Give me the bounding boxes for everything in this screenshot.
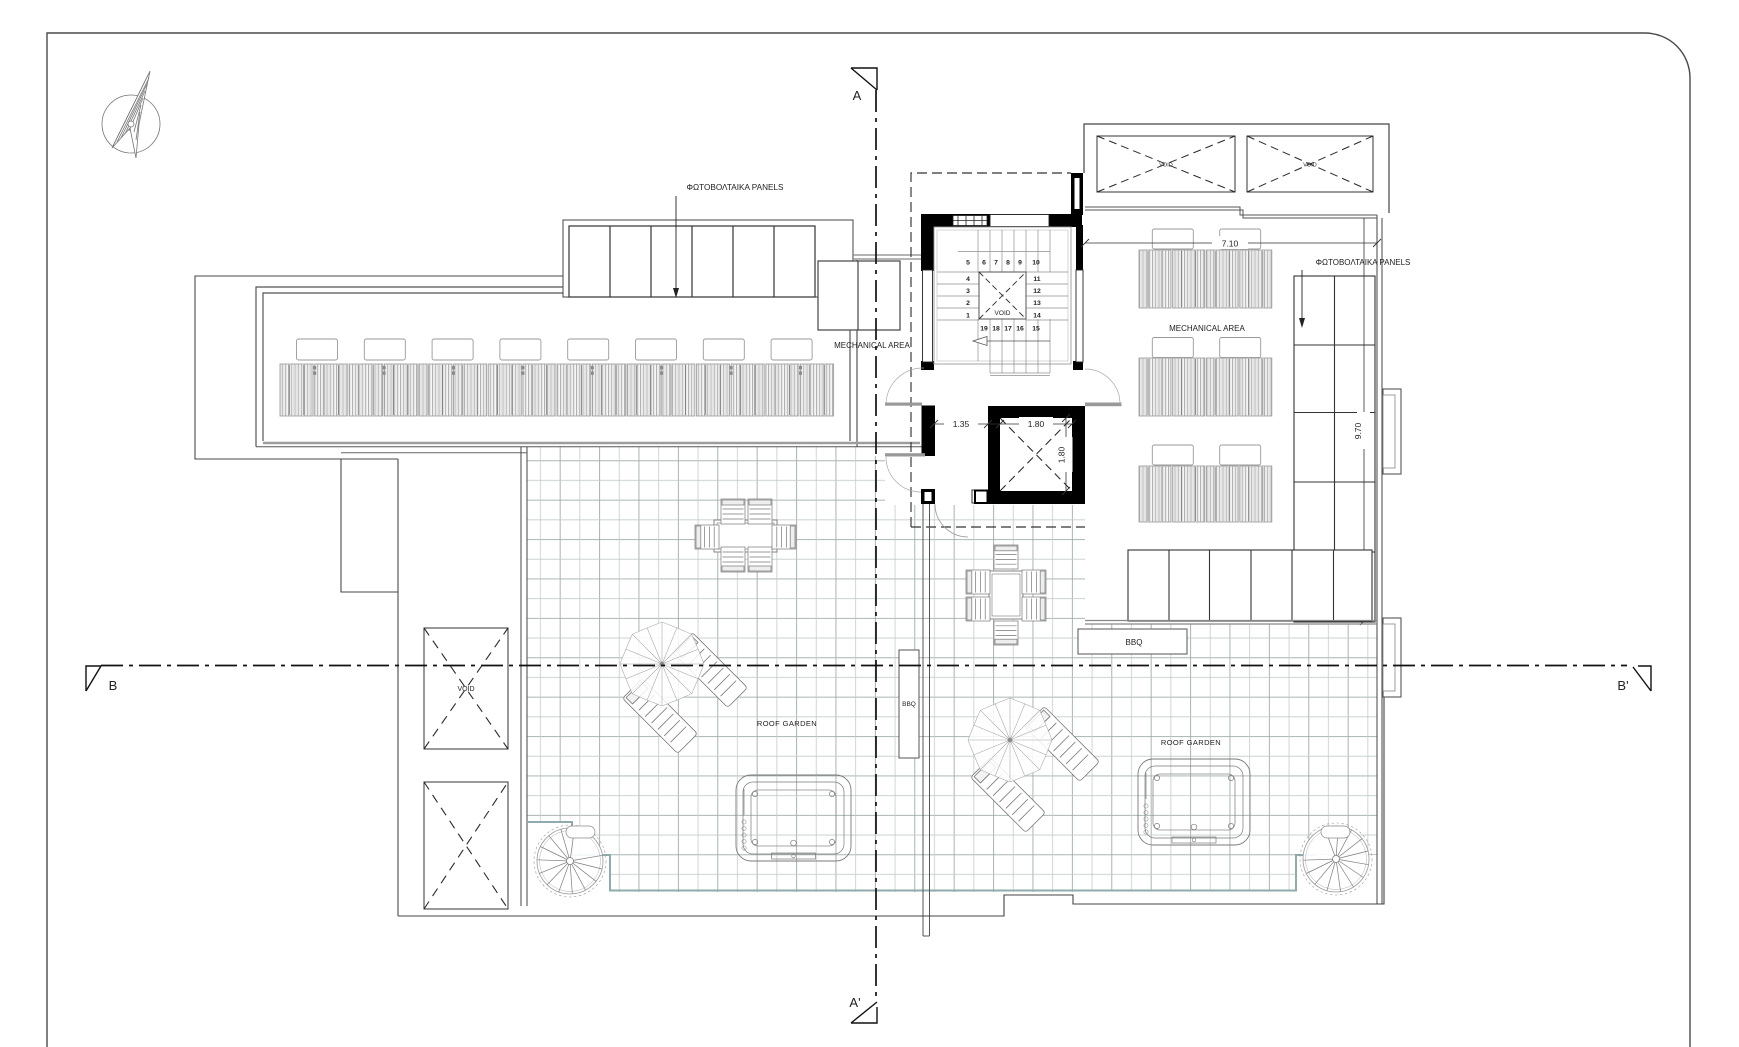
svg-text:ΦΩΤΟΒΟΛΤΑΙΚΑ PANELS: ΦΩΤΟΒΟΛΤΑΙΚΑ PANELS	[1316, 258, 1411, 267]
svg-text:7: 7	[994, 260, 998, 267]
svg-text:14: 14	[1033, 313, 1041, 320]
svg-text:10: 10	[1032, 260, 1040, 267]
svg-text:8: 8	[1006, 260, 1010, 267]
svg-text:ROOF GARDEN: ROOF GARDEN	[757, 719, 817, 728]
svg-text:1.80: 1.80	[1028, 419, 1045, 429]
svg-text:MECHANICAL AREA: MECHANICAL AREA	[1169, 324, 1245, 333]
svg-text:15: 15	[1032, 326, 1040, 333]
svg-text:16: 16	[1016, 326, 1024, 333]
svg-text:9.70: 9.70	[1353, 422, 1363, 439]
svg-text:1: 1	[966, 313, 970, 320]
svg-text:2: 2	[966, 300, 970, 307]
svg-text:9: 9	[1018, 260, 1022, 267]
svg-text:VOID: VOID	[995, 310, 1011, 317]
svg-text:6: 6	[982, 260, 986, 267]
svg-text:1.35: 1.35	[953, 419, 970, 429]
svg-text:5: 5	[966, 260, 970, 267]
svg-text:B: B	[109, 678, 118, 693]
svg-text:BBQ: BBQ	[1126, 638, 1143, 647]
svg-text:7.10: 7.10	[1222, 239, 1239, 249]
svg-text:18: 18	[992, 326, 1000, 333]
svg-text:B': B'	[1617, 678, 1628, 693]
svg-text:BBQ: BBQ	[902, 701, 916, 708]
svg-text:A: A	[853, 88, 862, 103]
svg-text:VOID: VOID	[1303, 163, 1316, 169]
svg-text:ROOF GARDEN: ROOF GARDEN	[1161, 738, 1221, 747]
svg-text:A': A'	[849, 995, 860, 1010]
svg-text:4: 4	[966, 276, 970, 283]
svg-text:VOID: VOID	[1159, 163, 1172, 169]
svg-text:ΦΩΤΟΒΟΛΤΑΙΚΑ PANELS: ΦΩΤΟΒΟΛΤΑΙΚΑ PANELS	[687, 183, 785, 192]
svg-text:3: 3	[966, 288, 970, 295]
svg-text:13: 13	[1033, 300, 1041, 307]
svg-text:11: 11	[1033, 276, 1040, 283]
svg-text:17: 17	[1004, 326, 1012, 333]
svg-text:19: 19	[980, 326, 988, 333]
svg-text:1.80: 1.80	[1057, 446, 1067, 463]
svg-text:MECHANICAL AREA: MECHANICAL AREA	[834, 341, 910, 350]
svg-text:12: 12	[1033, 288, 1041, 295]
svg-text:VOID: VOID	[457, 686, 474, 693]
